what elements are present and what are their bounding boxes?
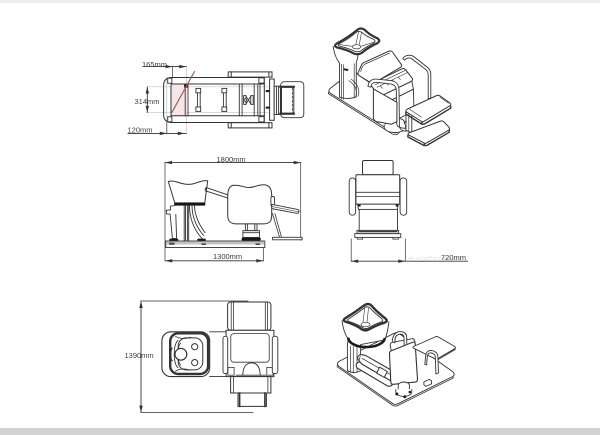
- svg-text:720mm: 720mm: [441, 253, 466, 262]
- svg-text:1300mm: 1300mm: [213, 252, 242, 261]
- svg-text:165mm: 165mm: [142, 60, 167, 69]
- svg-text:1390mm: 1390mm: [125, 351, 154, 360]
